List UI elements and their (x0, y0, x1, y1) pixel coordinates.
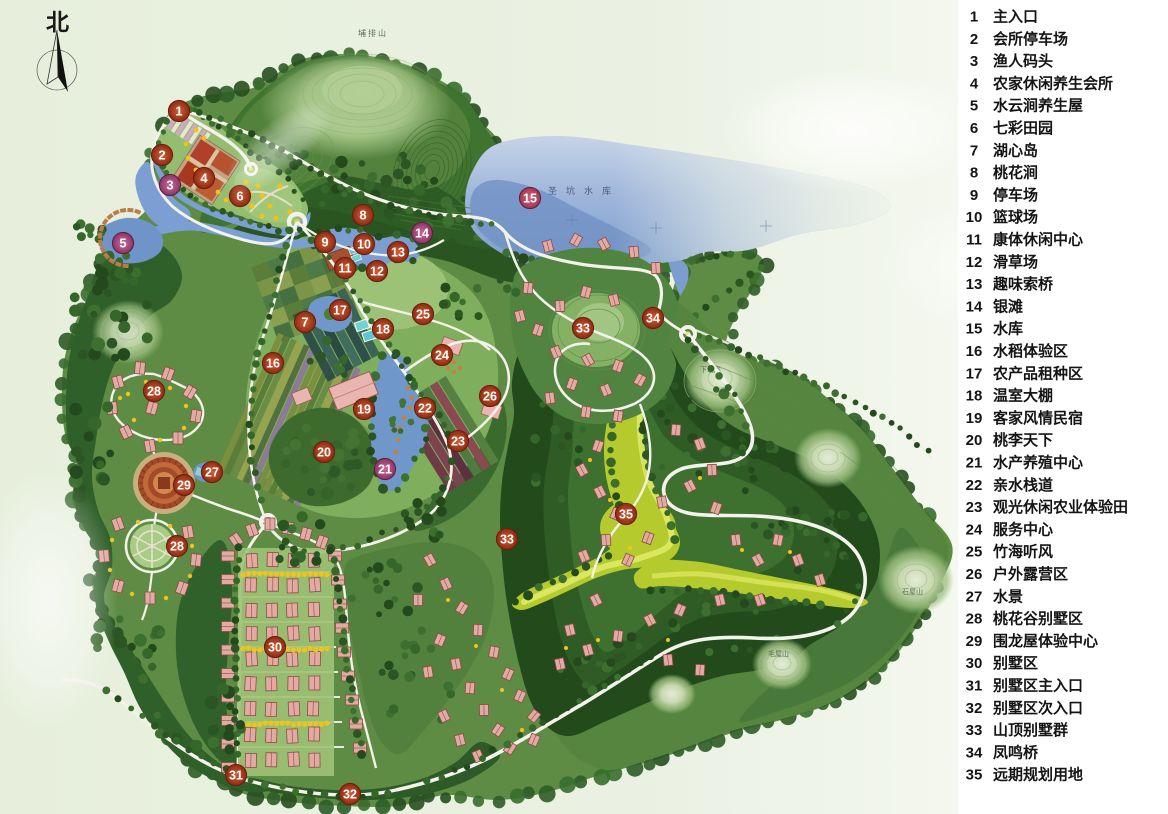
svg-text:水云涧养生屋: 水云涧养生屋 (993, 97, 1083, 115)
svg-text:北: 北 (46, 9, 69, 35)
svg-text:20: 20 (966, 432, 983, 449)
svg-text:别墅区: 别墅区 (992, 655, 1038, 672)
svg-text:1: 1 (175, 104, 182, 119)
svg-text:围龙屋体验中心: 围龙屋体验中心 (993, 632, 1098, 650)
svg-text:5: 5 (970, 98, 978, 115)
svg-text:23: 23 (451, 435, 465, 449)
svg-text:别墅区次入口: 别墅区次入口 (992, 699, 1083, 717)
svg-text:5: 5 (119, 236, 126, 251)
svg-text:水产养殖中心: 水产养殖中心 (993, 454, 1083, 472)
svg-text:主入口: 主入口 (993, 8, 1038, 26)
svg-text:7: 7 (970, 142, 978, 159)
svg-text:凤鸣桥: 凤鸣桥 (993, 743, 1039, 761)
svg-text:27: 27 (966, 588, 983, 605)
svg-text:23: 23 (966, 499, 983, 516)
svg-text:15: 15 (966, 321, 983, 338)
svg-text:别墅区主入口: 别墅区主入口 (992, 677, 1083, 695)
svg-text:9: 9 (970, 187, 978, 204)
svg-text:25: 25 (966, 544, 983, 561)
svg-text:22: 22 (966, 477, 983, 494)
svg-text:11: 11 (338, 262, 351, 276)
svg-text:竹海听风: 竹海听风 (992, 543, 1053, 561)
svg-text:6: 6 (970, 120, 978, 137)
svg-text:滑草场: 滑草场 (993, 253, 1038, 271)
svg-text:银滩: 银滩 (993, 297, 1023, 315)
svg-text:远期规划用地: 远期规划用地 (993, 766, 1083, 784)
svg-text:10: 10 (966, 209, 983, 226)
svg-text:4: 4 (200, 171, 208, 186)
svg-text:31: 31 (966, 678, 983, 695)
svg-text:17: 17 (333, 304, 347, 318)
svg-text:34: 34 (646, 312, 660, 326)
svg-text:28: 28 (966, 611, 983, 628)
svg-text:19: 19 (966, 410, 983, 427)
svg-text:16: 16 (966, 343, 983, 360)
svg-text:农产品租种区: 农产品租种区 (992, 364, 1083, 382)
svg-text:3: 3 (970, 53, 978, 70)
svg-text:35: 35 (619, 508, 633, 522)
svg-text:32: 32 (343, 788, 357, 802)
svg-text:停车场: 停车场 (993, 186, 1038, 204)
svg-text:35: 35 (966, 767, 983, 784)
svg-text:20: 20 (317, 446, 331, 460)
svg-text:31: 31 (229, 769, 243, 783)
svg-text:观光休闲农业体验田: 观光休闲农业体验田 (993, 498, 1128, 516)
svg-text:29: 29 (177, 479, 191, 493)
svg-text:18: 18 (376, 323, 390, 337)
svg-text:27: 27 (205, 466, 219, 480)
svg-text:1: 1 (970, 9, 978, 26)
svg-text:户外露营区: 户外露营区 (993, 565, 1068, 583)
svg-text:29: 29 (966, 633, 983, 650)
svg-text:亲水栈道: 亲水栈道 (993, 476, 1053, 494)
svg-text:25: 25 (416, 308, 430, 322)
svg-text:山顶别墅群: 山顶别墅群 (993, 721, 1068, 739)
svg-text:17: 17 (966, 365, 983, 382)
svg-text:12: 12 (966, 254, 983, 271)
svg-text:服务中心: 服务中心 (993, 520, 1053, 538)
svg-text:33: 33 (500, 533, 514, 547)
svg-text:毛屋山: 毛屋山 (768, 649, 789, 658)
svg-text:26: 26 (483, 390, 497, 404)
svg-text:7: 7 (301, 315, 308, 330)
svg-text:水库: 水库 (993, 320, 1023, 338)
svg-text:21: 21 (378, 463, 392, 477)
svg-text:33: 33 (576, 322, 590, 336)
svg-text:埔排山: 埔排山 (358, 28, 388, 38)
svg-text:14: 14 (415, 227, 429, 241)
svg-text:8: 8 (359, 208, 366, 223)
svg-text:18: 18 (966, 388, 983, 405)
svg-text:客家风情民宿: 客家风情民宿 (992, 409, 1083, 427)
svg-text:康体休闲中心: 康体休闲中心 (993, 231, 1083, 249)
svg-text:篮球场: 篮球场 (992, 208, 1038, 226)
svg-text:七彩田园: 七彩田园 (993, 119, 1053, 137)
svg-text:温室大棚: 温室大棚 (993, 387, 1053, 405)
svg-text:趣味索桥: 趣味索桥 (992, 275, 1054, 293)
svg-text:4: 4 (970, 75, 979, 92)
svg-text:3: 3 (166, 178, 173, 193)
svg-text:桃李天下: 桃李天下 (993, 431, 1053, 449)
svg-text:石屋山: 石屋山 (902, 587, 923, 596)
svg-text:渔人码头: 渔人码头 (993, 52, 1053, 70)
svg-text:15: 15 (523, 192, 537, 206)
svg-text:28: 28 (147, 385, 161, 399)
svg-text:12: 12 (370, 265, 384, 279)
svg-text:农家休闲养生会所: 农家休闲养生会所 (992, 74, 1113, 92)
svg-text:26: 26 (966, 566, 983, 583)
svg-text:28: 28 (170, 540, 184, 554)
svg-text:33: 33 (966, 722, 983, 739)
svg-text:水稻体验区: 水稻体验区 (993, 342, 1068, 360)
svg-text:11: 11 (966, 232, 982, 249)
svg-text:9: 9 (321, 235, 328, 250)
svg-text:8: 8 (970, 165, 978, 182)
svg-text:32: 32 (966, 700, 983, 717)
svg-text:30: 30 (268, 641, 282, 655)
svg-text:24: 24 (435, 349, 449, 363)
svg-text:13: 13 (966, 276, 983, 293)
svg-text:30: 30 (966, 655, 983, 672)
svg-text:桃花涧: 桃花涧 (993, 164, 1038, 182)
svg-text:圣坑水库: 圣坑水库 (548, 185, 620, 196)
svg-text:2: 2 (158, 148, 165, 163)
svg-text:桃花谷别墅区: 桃花谷别墅区 (993, 610, 1083, 628)
svg-text:21: 21 (966, 455, 983, 472)
svg-text:19: 19 (357, 403, 371, 417)
svg-text:14: 14 (966, 298, 983, 315)
svg-text:16: 16 (266, 357, 280, 371)
svg-text:34: 34 (966, 744, 983, 761)
svg-text:10: 10 (357, 238, 371, 252)
svg-text:水景: 水景 (993, 587, 1023, 605)
svg-text:24: 24 (966, 521, 983, 538)
svg-text:会所停车场: 会所停车场 (993, 30, 1068, 48)
svg-text:13: 13 (391, 246, 405, 260)
svg-text:2: 2 (970, 31, 978, 48)
svg-text:22: 22 (418, 402, 432, 416)
svg-text:湖心岛: 湖心岛 (993, 141, 1038, 159)
